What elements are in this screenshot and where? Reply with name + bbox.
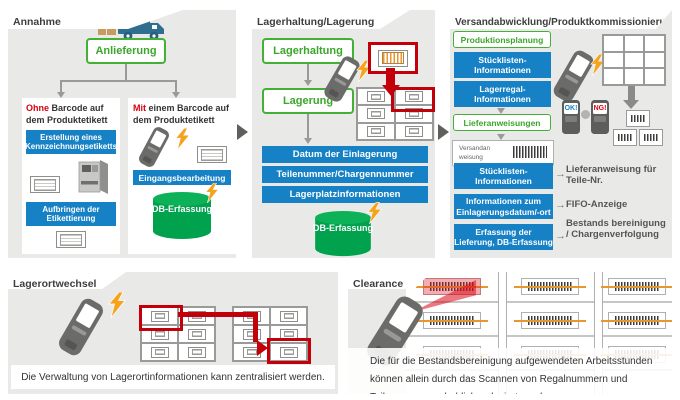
- arrow-down-icon: [304, 80, 312, 86]
- panel-lagerortwechsel: Lagerortwechsel: [8, 272, 338, 394]
- parcel-icon: [197, 146, 227, 163]
- panel-versand-title-tab: Versandabwicklung/Produktkommissionierun…: [450, 10, 672, 29]
- anlieferung-label: Anlieferung: [95, 45, 156, 57]
- map2-bar: Informationen zum Einlagerungsdatum/-ort: [454, 194, 553, 219]
- shelf-barcode-label: [423, 312, 481, 329]
- step-label: Eingangsbearbeitung: [139, 173, 226, 183]
- bar-label: Teilenummer/Chargennummer: [276, 169, 413, 180]
- branch-ohne-card: Ohne Barcode auf dem Produktetikett Erst…: [22, 98, 120, 254]
- bar-label: Erfassung der Lieferung, DB-Erfassung: [454, 227, 553, 247]
- panel-versand: Versandabwicklung/Produktkommissionierun…: [450, 10, 672, 258]
- produktionsplanung-button: Produktionsplanung: [453, 31, 551, 48]
- bar-label: Lagerplatzinformationen: [290, 189, 401, 200]
- rack-beam: [406, 335, 672, 337]
- db-cylinder-icon: DB-Erfassung: [312, 210, 374, 258]
- lightning-icon: [205, 183, 219, 203]
- device-keypad: [594, 116, 606, 122]
- scan-graphic: [133, 126, 231, 170]
- red-arrow-right-icon: [257, 340, 268, 356]
- process-diagram: Annahme Anlieferung Ohne Barcode auf dem…: [0, 0, 680, 400]
- lieferanweisungen-button: Lieferanweisungen: [453, 114, 551, 131]
- shelf-barcode-label: [608, 312, 666, 329]
- bar-label: Stücklisten-Informationen: [454, 55, 551, 75]
- map-arrow-icon: →: [555, 199, 566, 211]
- arrow-down-icon: [304, 138, 312, 144]
- branch-mit-heading: Mit einem Barcode auf dem Produktetikett: [133, 103, 231, 126]
- panel-lagerung-title-tab: Lagerhaltung/Lagerung: [252, 10, 410, 29]
- map-arrow-icon: →: [555, 168, 566, 180]
- panel-title: Lagerortwechsel: [13, 278, 96, 290]
- label-printing-graphic: [26, 154, 116, 200]
- bar-label: Lagerregal-Informationen: [454, 84, 551, 104]
- lagerortwechsel-caption: Die Verwaltung von Lagerortinformationen…: [21, 372, 325, 383]
- caption-overlay: Die für die Bestandsbereinigung aufgewen…: [348, 348, 672, 394]
- clearance-caption: Die für die Bestandsbereinigung aufgewen…: [370, 356, 652, 394]
- branch-mit-em: Mit: [133, 103, 146, 113]
- gray-arrow-shaft: [628, 86, 635, 100]
- handheld-scanner-icon: [134, 124, 173, 171]
- bar-lagerplatz: Lagerplatzinformationen: [262, 186, 428, 203]
- red-path-horizontal: [178, 312, 258, 317]
- parcel-icon: [280, 311, 298, 322]
- map3-result: Bestands bereinigung / Chargenverfolgung: [566, 219, 670, 241]
- parcel-barcode-box: [639, 129, 663, 146]
- gray-arrow-down-icon: [623, 100, 639, 109]
- parcel-icon: [405, 126, 423, 137]
- map1-result: Lieferanweisung für Teile-Nr.: [566, 165, 670, 187]
- lieferanweisungen-label: Lieferanweisungen: [464, 118, 541, 128]
- anlieferung-button: Anlieferung: [86, 38, 166, 64]
- or-dot: [581, 110, 590, 119]
- parcel-icon: [367, 126, 385, 137]
- branch-mit-card: Mit einem Barcode auf dem Produktetikett…: [128, 98, 236, 254]
- bar-label: Informationen zum Einlagerungsdatum/-ort: [454, 196, 553, 216]
- step-erstellung-bar: Erstellung eines Kennzeichnungsetiketts: [26, 130, 116, 154]
- connector-line: [307, 64, 309, 80]
- connector-line: [125, 64, 127, 80]
- lightning-icon: [108, 292, 126, 318]
- ng-device: NG!: [591, 100, 609, 134]
- bar-lagerregal: Lagerregal-Informationen: [454, 81, 551, 107]
- handheld-scanner-icon: [53, 293, 110, 362]
- paper-text-line2: weisung: [459, 154, 490, 163]
- step-aufbringen-bar: Aufbringen der Etikettierung: [26, 202, 116, 226]
- parcel-icon: [367, 108, 385, 119]
- connector-line: [60, 80, 176, 82]
- parcel-barcode-box: [626, 110, 650, 127]
- panel-title: Annahme: [13, 16, 61, 28]
- branch-mit-text: einem Barcode auf dem Produktetikett: [133, 103, 229, 125]
- parcel-icon: [188, 329, 206, 340]
- panel-title: Lagerhaltung/Lagerung: [257, 16, 374, 28]
- panel-lagerung: Lagerhaltung/Lagerung Lagerhaltung Lager…: [252, 10, 435, 258]
- parcel-icon: [188, 347, 206, 358]
- step-label: Erstellung eines Kennzeichnungsetiketts: [25, 133, 117, 152]
- connector-line: [60, 80, 62, 92]
- db-label: DB-Erfassung: [151, 204, 213, 214]
- connector-line: [175, 80, 177, 92]
- ok-device: OK!: [562, 100, 580, 134]
- panel-arrow-right-icon: [237, 124, 248, 140]
- db-label: DB-Erfassung: [312, 223, 374, 233]
- step-label: Aufbringen der Etikettierung: [27, 205, 115, 224]
- map2-result: FIFO-Anzeige: [566, 200, 670, 211]
- parcel-barcode-icon: [378, 50, 408, 67]
- map3-bar: Erfassung der Lieferung, DB-Erfassung: [454, 224, 553, 250]
- source-location-highlight: [139, 305, 183, 331]
- lightning-icon: [175, 128, 190, 150]
- map1-bar: Stücklisten-Informationen: [454, 163, 553, 189]
- panel-annahme: Annahme Anlieferung Ohne Barcode auf dem…: [8, 10, 236, 258]
- panel-arrow-right-icon: [438, 124, 449, 140]
- lagerhaltung-label: Lagerhaltung: [273, 45, 343, 57]
- lightning-icon: [367, 202, 382, 224]
- parcel-icon: [56, 231, 86, 248]
- target-location-highlight: [267, 338, 311, 364]
- shelf-icon: [602, 34, 666, 86]
- caption-strip: Die Verwaltung von Lagerortinformationen…: [11, 365, 335, 389]
- shelf-barcode-label: [521, 278, 579, 295]
- bar-einlagerung: Datum der Einlagerung: [262, 146, 428, 163]
- paper-text-line1: Versandan: [459, 145, 490, 154]
- bar-label: Stücklisten-Informationen: [454, 166, 553, 186]
- printer-icon: [76, 156, 110, 198]
- db-cylinder-icon: DB-Erfassung: [151, 191, 213, 241]
- shelf-barcode-label: [521, 312, 579, 329]
- panel-title: Versandabwicklung/Produktkommissionierun…: [455, 17, 678, 28]
- branch-ohne-heading: Ohne Barcode auf dem Produktetikett: [26, 103, 116, 126]
- panel-lagerortwechsel-title-tab: Lagerortwechsel: [8, 272, 126, 289]
- storage-location-highlight: [391, 87, 435, 112]
- device-keypad: [565, 116, 577, 122]
- produktionsplanung-label: Produktionsplanung: [461, 35, 544, 45]
- branch-ohne-em: Ohne: [26, 103, 49, 113]
- parcel-barcode-box: [613, 129, 637, 146]
- bar-teilenummer: Teilenummer/Chargennummer: [262, 166, 428, 183]
- bar-stuecklisten: Stücklisten-Informationen: [454, 52, 551, 78]
- ok-label: OK!: [564, 103, 578, 114]
- connector-line: [307, 114, 309, 138]
- bar-label: Datum der Einlagerung: [293, 149, 398, 160]
- scanned-label-tint: [423, 278, 481, 295]
- red-arrow-shaft: [386, 68, 395, 86]
- parcel-icon: [151, 347, 169, 358]
- panel-clearance: Clearance Die für die Bestandsbereinigun…: [348, 272, 672, 394]
- shelf-barcode-label: [608, 278, 666, 295]
- panel-title: Clearance: [353, 278, 403, 290]
- parcel-icon: [30, 176, 60, 193]
- barcode-icon: [513, 146, 547, 158]
- ng-label: NG!: [593, 103, 607, 114]
- red-path-vertical: [253, 312, 258, 342]
- map-arrow-icon: →: [555, 230, 566, 242]
